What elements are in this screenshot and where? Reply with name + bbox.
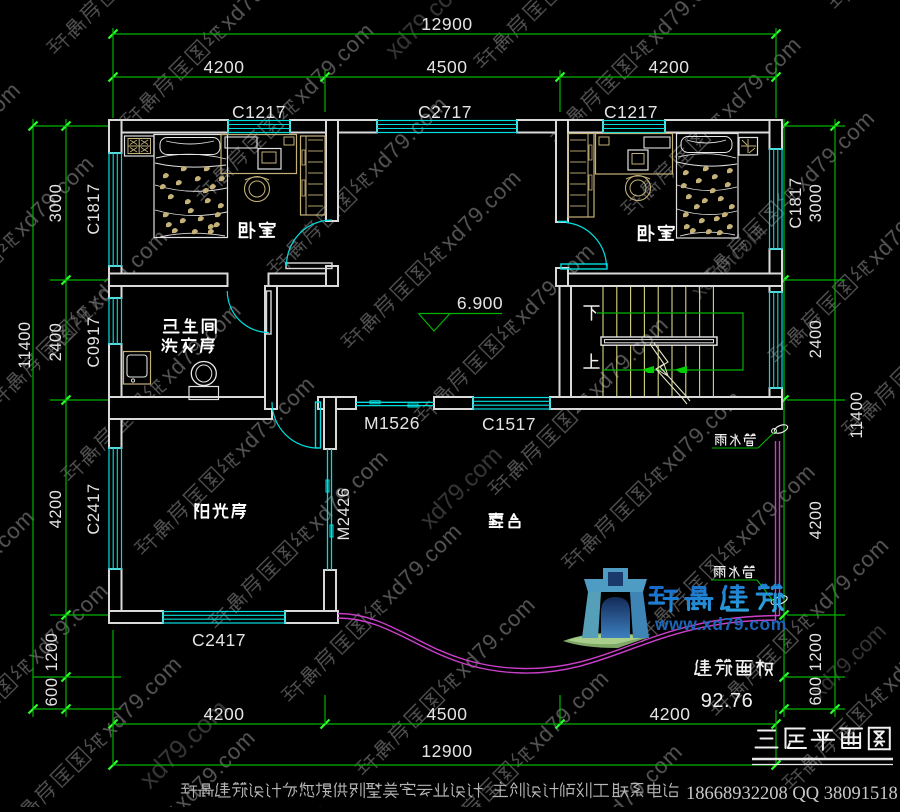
svg-text:18668932208 QQ 38091518: 18668932208 QQ 38091518 [686,784,898,804]
svg-text:4500: 4500 [427,57,468,77]
svg-text:600: 600 [807,676,825,705]
svg-text:92.76: 92.76 [701,690,754,712]
svg-text:4200: 4200 [204,704,245,724]
svg-text:C2717: C2717 [418,102,472,122]
svg-text:C1817: C1817 [787,177,805,228]
svg-text:M1526: M1526 [364,413,420,433]
svg-text:www.xd79.com: www.xd79.com [654,614,787,634]
svg-text:4500: 4500 [427,704,468,724]
svg-text:2400: 2400 [807,320,825,359]
svg-text:M2426: M2426 [335,488,353,541]
svg-text:4200: 4200 [649,57,690,77]
svg-text:4200: 4200 [204,57,245,77]
svg-text:12900: 12900 [421,741,472,761]
svg-text:C1817: C1817 [85,183,103,234]
svg-text:4200: 4200 [807,501,825,540]
svg-text:4200: 4200 [47,490,65,529]
svg-text:6.900: 6.900 [457,293,503,313]
svg-text:C1217: C1217 [232,102,286,122]
svg-text:C2417: C2417 [192,630,246,650]
svg-text:C2417: C2417 [85,483,103,534]
svg-text:2400: 2400 [47,323,65,362]
svg-text:C0917: C0917 [85,316,103,367]
svg-text:1200: 1200 [807,633,825,672]
svg-text:3000: 3000 [47,184,65,223]
svg-text:600: 600 [43,677,61,706]
svg-text:C1217: C1217 [604,102,658,122]
svg-text:12900: 12900 [421,14,472,34]
svg-text:1200: 1200 [43,633,61,672]
svg-text:C1517: C1517 [482,414,536,434]
svg-text:11400: 11400 [848,391,866,438]
svg-text:4200: 4200 [650,704,691,724]
svg-text:11400: 11400 [16,321,34,368]
svg-text:3000: 3000 [807,184,825,223]
